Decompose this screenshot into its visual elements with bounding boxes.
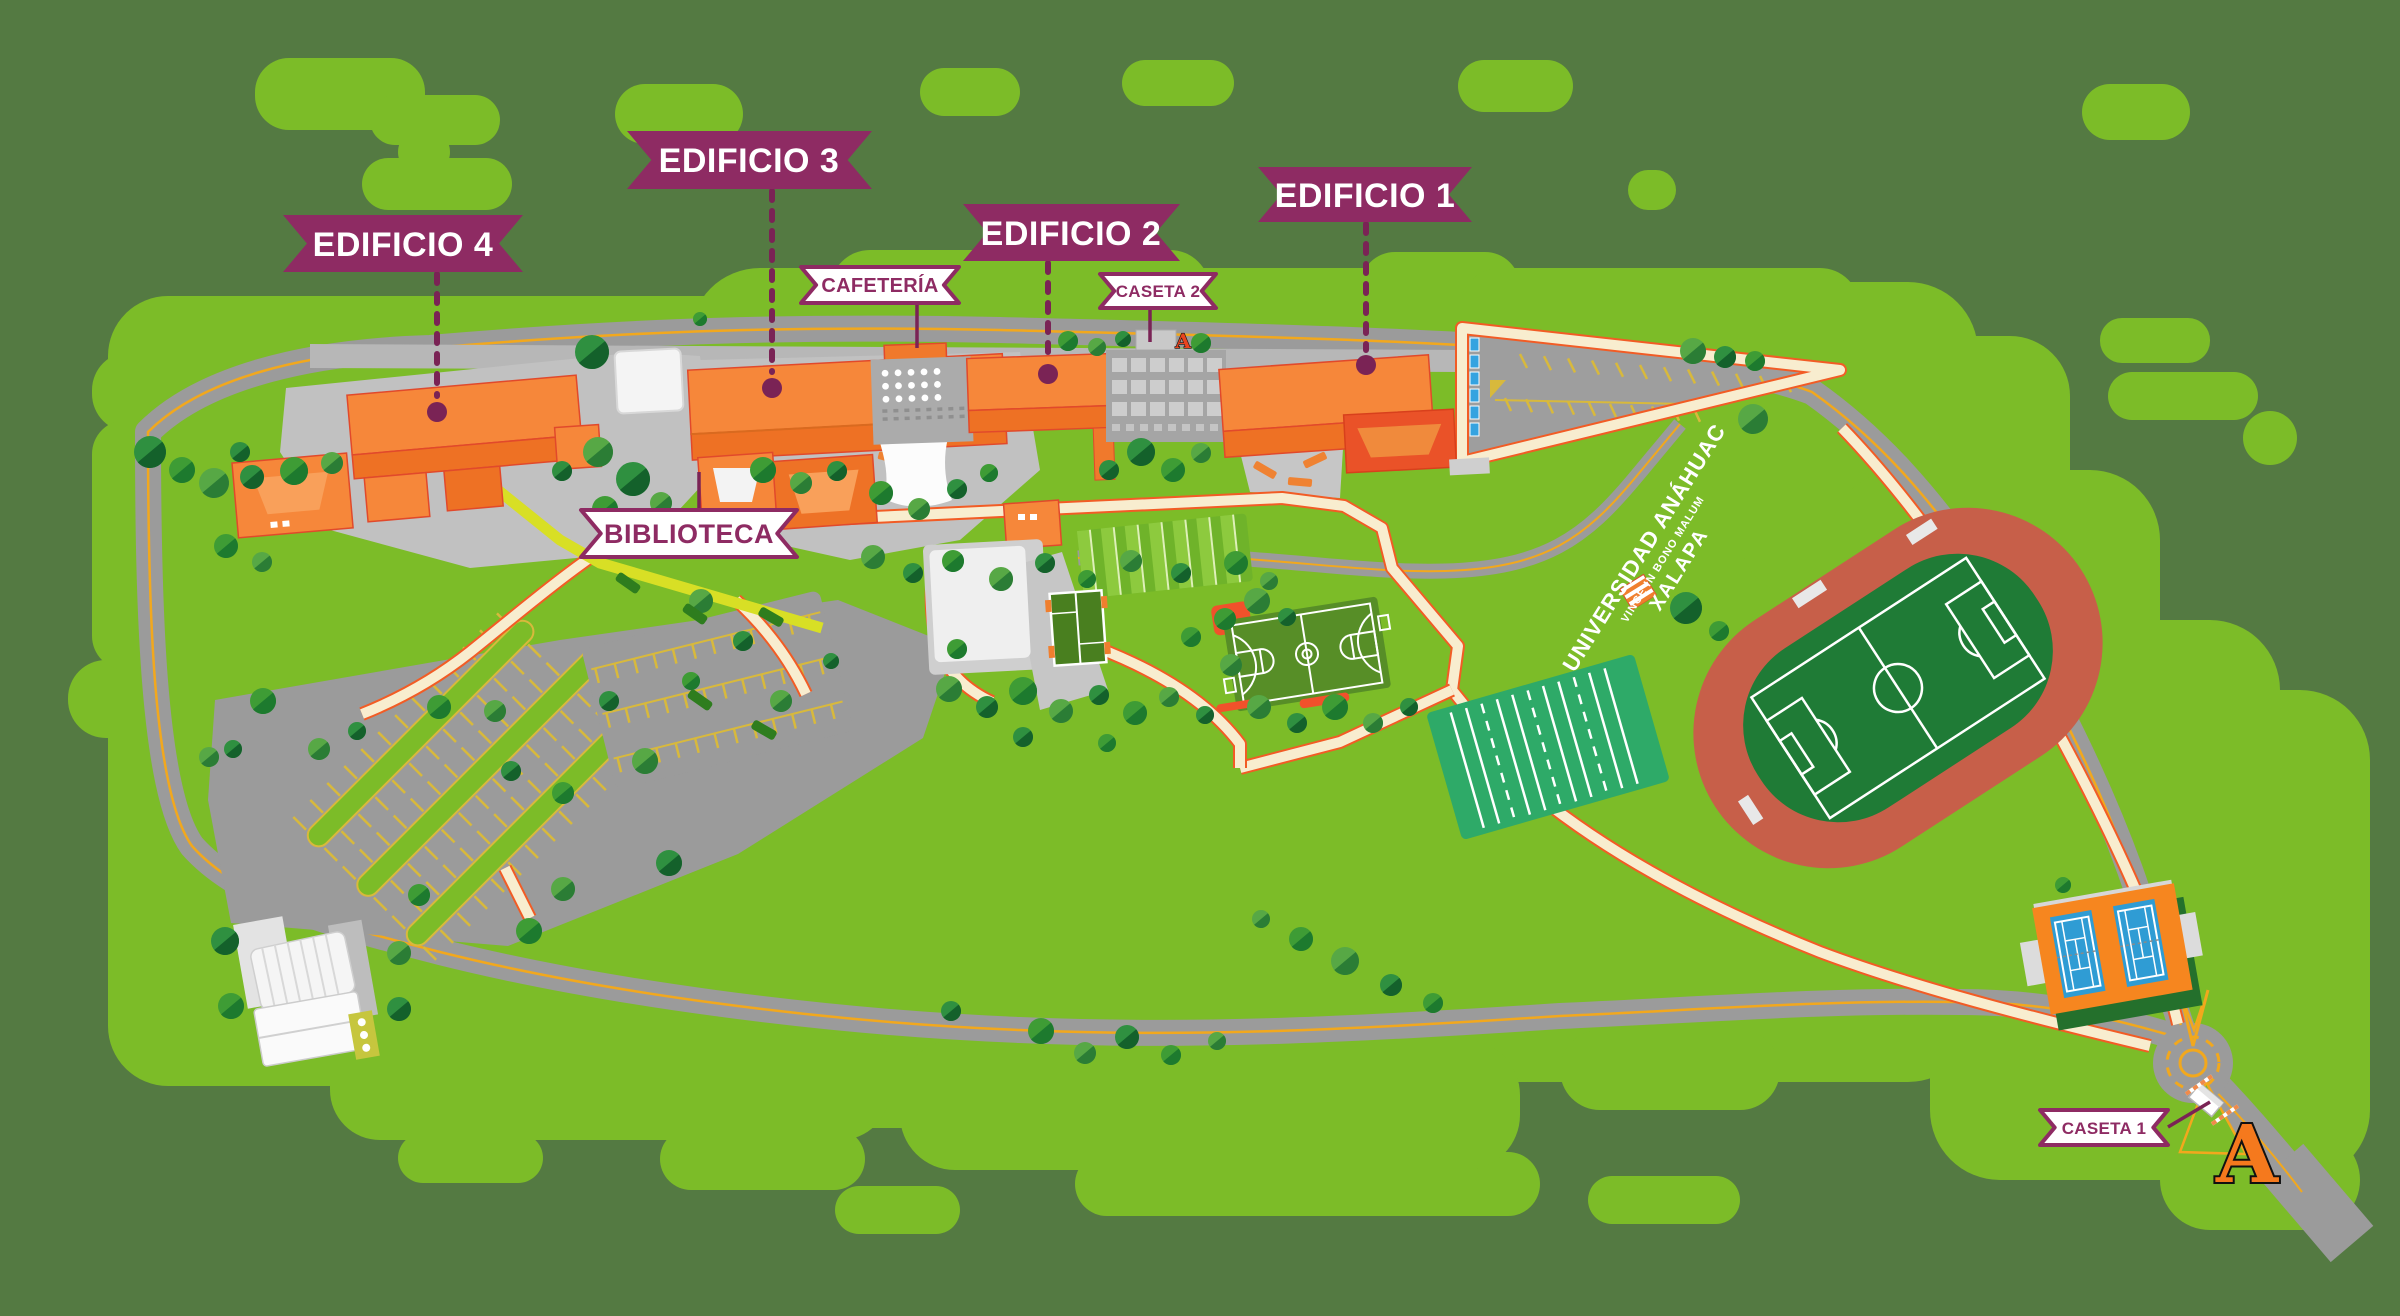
biblioteca-label: BIBLIOTECA [604, 519, 774, 549]
anahuac-logo: A [2215, 1107, 2279, 1201]
edificio-4-label: EDIFICIO 4 [313, 226, 494, 264]
building-cafeteria [870, 342, 973, 444]
edificio-2-label: EDIFICIO 2 [981, 215, 1162, 253]
campus-map-illustration: A [0, 0, 2400, 1316]
campus-map: A [0, 0, 2400, 1316]
caseta-2-label: CASETA 2 [1116, 282, 1201, 301]
cafeteria-label: CAFETERÍA [821, 274, 938, 297]
padel-court [1045, 590, 1112, 666]
caseta-2-logo: A [1174, 329, 1191, 353]
white-square-building [614, 348, 683, 413]
caseta-1-label: CASETA 1 [2062, 1119, 2147, 1138]
edificio-3-label: EDIFICIO 3 [659, 142, 840, 180]
edificio-1-label: EDIFICIO 1 [1275, 177, 1456, 215]
roundabout-island [2180, 1050, 2206, 1076]
